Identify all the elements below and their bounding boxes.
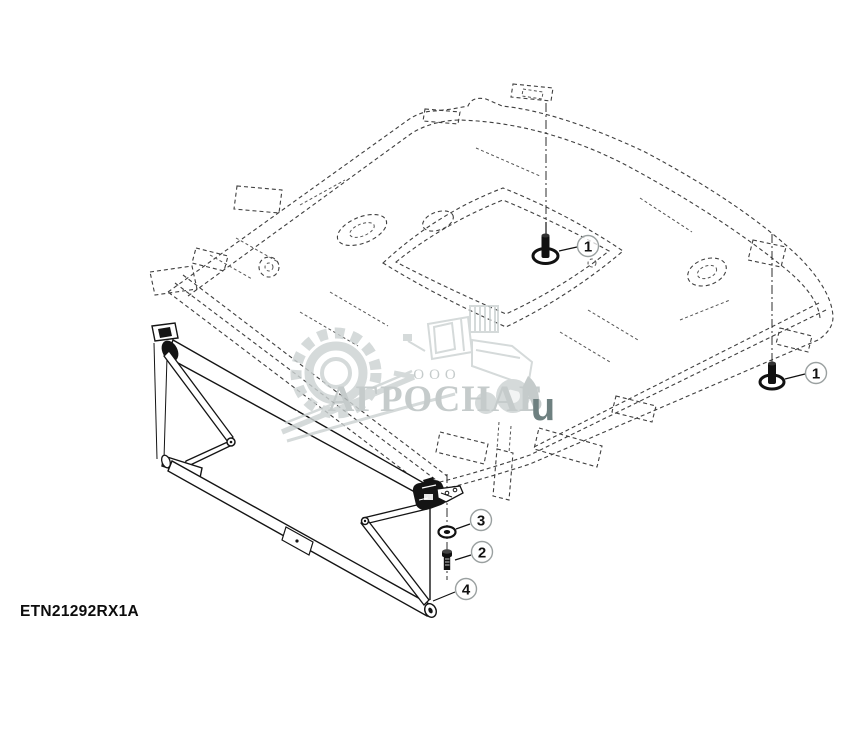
callout-label: 2 <box>478 545 486 562</box>
part-code-label: ETN21292RX1A <box>20 603 139 620</box>
callout-4[interactable]: 4 <box>456 579 477 600</box>
roof-hatch-opening <box>383 188 623 327</box>
callout-1-right[interactable]: 1 <box>806 363 827 384</box>
callout-3[interactable]: 3 <box>471 510 492 531</box>
watermark: ООО АГРОСНАБ <box>282 306 544 441</box>
watermark-suffix-letter: u <box>531 385 555 429</box>
screw-item1-left <box>533 222 558 264</box>
callout-label: 4 <box>462 582 471 599</box>
callout-2[interactable]: 2 <box>472 542 493 563</box>
fastener-centerlines <box>447 103 772 580</box>
parts-diagram: ООО АГРОСНАБ u 1 1 3 2 4 ETN21292RX1A <box>0 0 841 731</box>
callout-label: 1 <box>584 239 592 256</box>
screw-item1-right <box>760 362 784 390</box>
parts-diagram-page: ООО АГРОСНАБ u 1 1 3 2 4 ETN21292RX1A <box>0 0 841 731</box>
roof-brackets-and-tabs <box>150 84 812 500</box>
callout-label: 1 <box>812 366 820 383</box>
cab-roof-phantom-outline <box>168 98 833 492</box>
bolt-item2 <box>442 549 452 570</box>
callout-label: 3 <box>477 513 485 530</box>
scissor-arm-left-lower <box>184 440 232 468</box>
callout-1-left[interactable]: 1 <box>578 236 599 257</box>
roof-speaker-cutouts <box>259 207 730 291</box>
washer-item3 <box>439 527 456 538</box>
watermark-company-name: АГРОСНАБ <box>328 379 545 420</box>
mounting-bracket <box>437 486 463 502</box>
